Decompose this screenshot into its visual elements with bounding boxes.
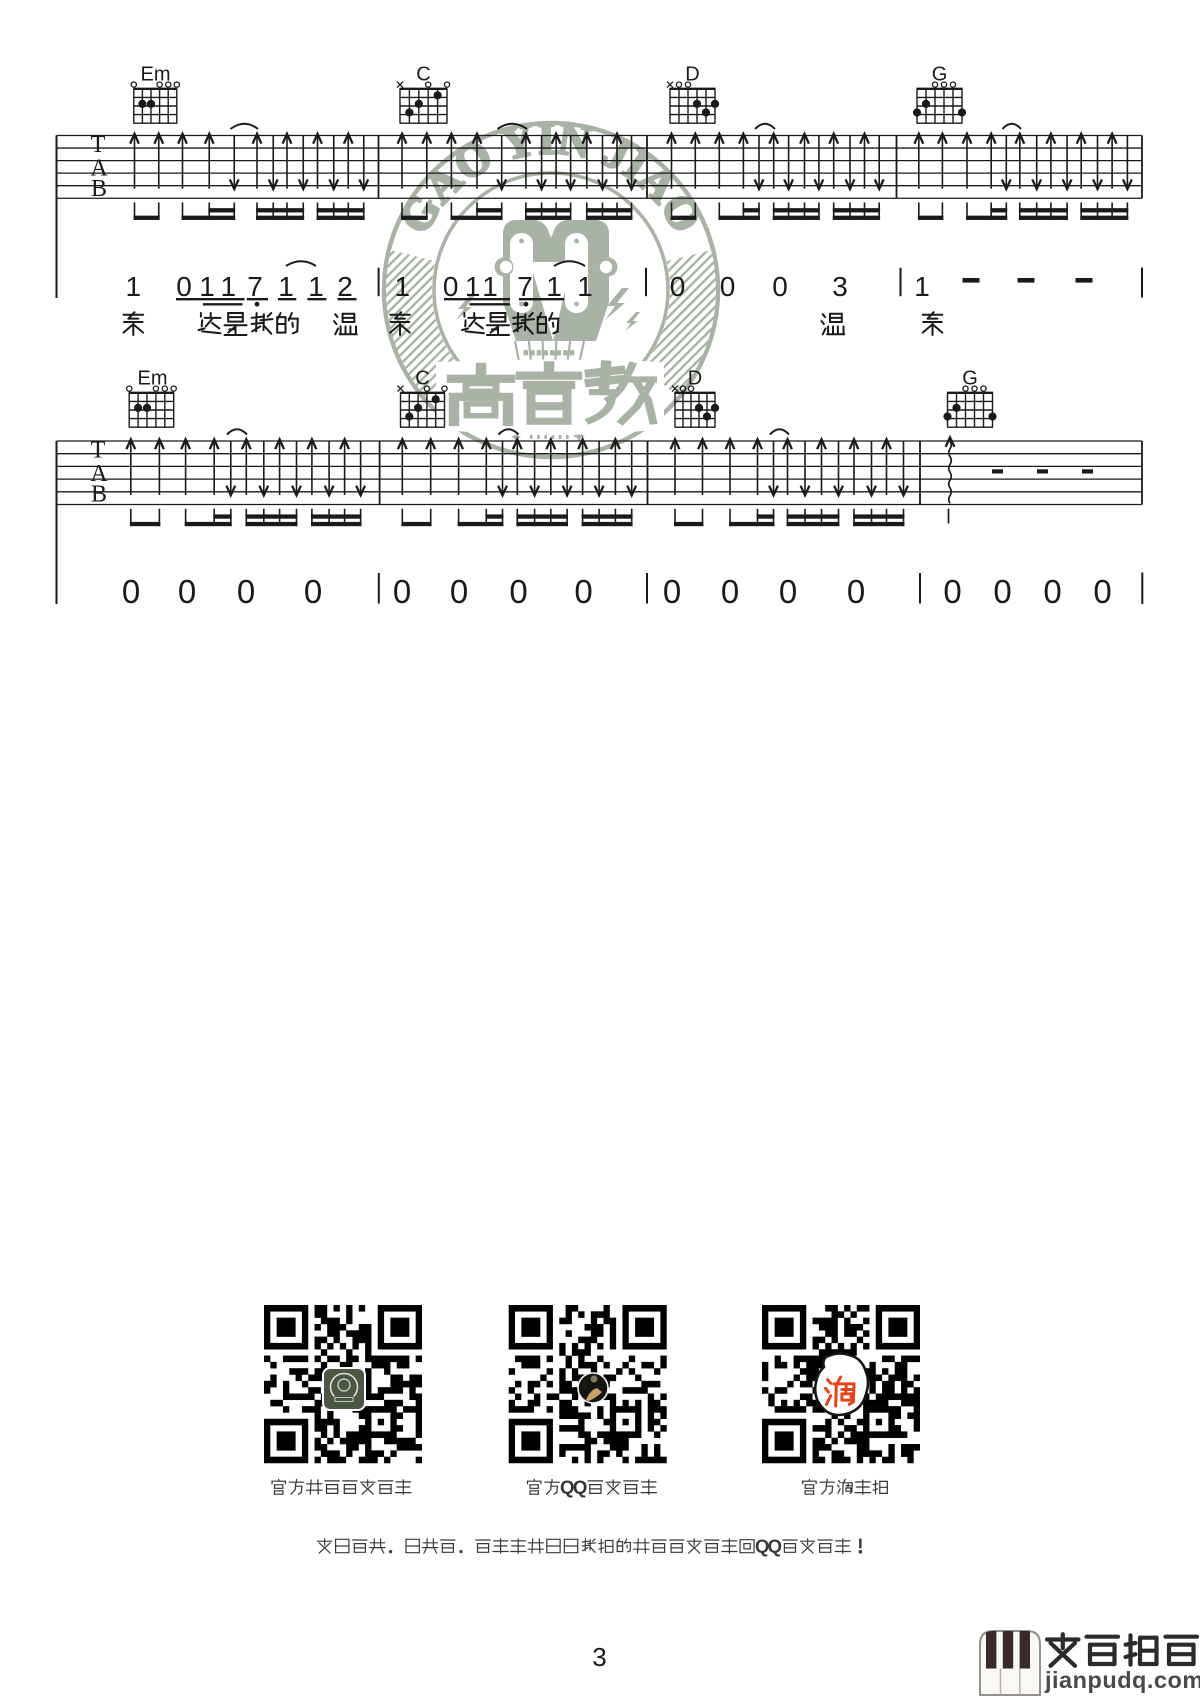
svg-text:0: 0 xyxy=(772,271,788,302)
svg-text:0: 0 xyxy=(237,573,255,610)
svg-text:1: 1 xyxy=(465,271,481,302)
svg-text:1: 1 xyxy=(395,271,411,302)
svg-text:0: 0 xyxy=(574,573,592,610)
svg-text:1: 1 xyxy=(577,271,593,302)
svg-text:7: 7 xyxy=(247,271,263,302)
svg-text:0: 0 xyxy=(670,271,686,302)
svg-text:0: 0 xyxy=(779,573,797,610)
svg-text:0: 0 xyxy=(443,271,459,302)
svg-text:1: 1 xyxy=(546,271,562,302)
svg-text:0: 0 xyxy=(721,573,739,610)
svg-text:3: 3 xyxy=(832,271,848,302)
svg-text:0: 0 xyxy=(720,271,736,302)
svg-text:Q: Q xyxy=(768,1535,782,1556)
svg-text:jianpudq.com: jianpudq.com xyxy=(1044,1667,1200,1693)
svg-text:1: 1 xyxy=(199,271,215,302)
svg-text:0: 0 xyxy=(1093,573,1111,610)
svg-text:0: 0 xyxy=(393,573,411,610)
svg-text:0: 0 xyxy=(122,573,140,610)
svg-text:GAO YIN JIAO: GAO YIN JIAO xyxy=(390,113,713,241)
svg-text:2: 2 xyxy=(337,271,353,302)
svg-text:1: 1 xyxy=(914,271,930,302)
svg-text:T: T xyxy=(91,438,106,464)
svg-text:0: 0 xyxy=(663,573,681,610)
svg-text:B: B xyxy=(91,482,107,508)
svg-text:0: 0 xyxy=(178,573,196,610)
svg-text:3: 3 xyxy=(592,1642,606,1672)
svg-text:0: 0 xyxy=(509,573,527,610)
svg-text:0: 0 xyxy=(1043,573,1061,610)
svg-text:0: 0 xyxy=(847,573,865,610)
svg-text:0: 0 xyxy=(993,573,1011,610)
svg-text:1: 1 xyxy=(482,271,498,302)
svg-text:1: 1 xyxy=(221,271,237,302)
svg-text:1: 1 xyxy=(126,271,142,302)
svg-text:B: B xyxy=(91,176,107,202)
svg-text:Q: Q xyxy=(573,1476,588,1497)
svg-text:1: 1 xyxy=(278,271,294,302)
svg-text:0: 0 xyxy=(176,271,192,302)
svg-text:Em: Em xyxy=(141,63,171,85)
svg-text:0: 0 xyxy=(943,573,961,610)
svg-text:7: 7 xyxy=(517,271,533,302)
svg-text:0: 0 xyxy=(304,573,322,610)
svg-text:0: 0 xyxy=(450,573,468,610)
svg-text:1: 1 xyxy=(308,271,324,302)
svg-text:T: T xyxy=(91,132,106,158)
